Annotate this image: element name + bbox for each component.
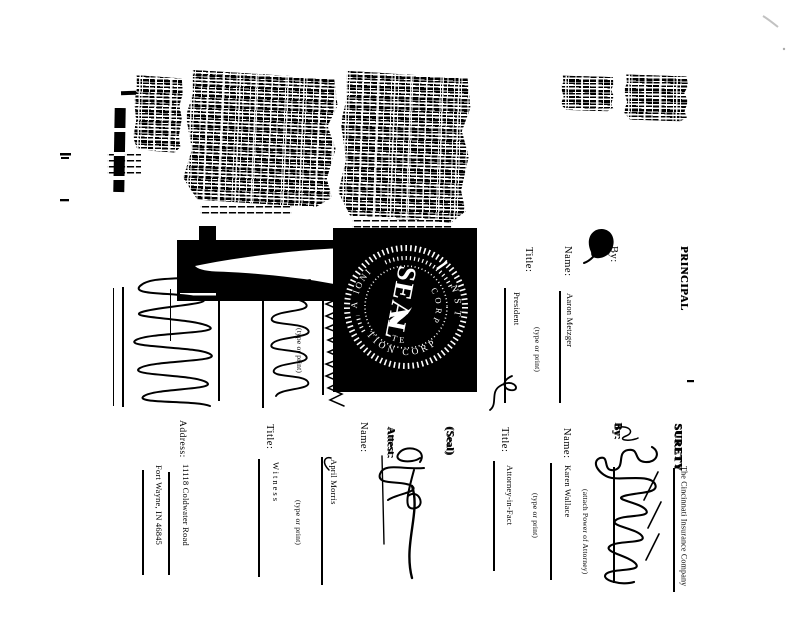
- garbled-text-block-4: [337, 71, 471, 223]
- witness-name-label: Name:: [358, 422, 369, 453]
- seal-text-right: NST: [448, 284, 462, 323]
- seal-note: (Seal): [444, 427, 455, 455]
- handwriting-rule-b: [262, 282, 264, 408]
- surety-typed-title: Attorney-in-Fact: [505, 465, 514, 525]
- garbled-text-block-1: [133, 75, 184, 153]
- garbled-text-block-4b: [352, 220, 452, 236]
- address-line2: Fort Wayne, IN 46845: [154, 465, 163, 545]
- witness-typed-name: April Morris: [329, 459, 338, 505]
- address-line2-rule: [142, 470, 144, 575]
- garbled-text-block-6: [624, 74, 689, 121]
- handwriting-rule-c: [218, 269, 220, 401]
- corporate-seal-stamp: IONI NST TION CORP A CORP TE SEAL: [333, 228, 477, 392]
- handwriting-rule-d: [122, 287, 124, 407]
- witness-title-label: Title:: [264, 424, 275, 449]
- handwriting-rule-f: [170, 289, 171, 341]
- surety-company-name: The Cincinnati Insurance Company: [679, 466, 687, 586]
- garbled-text-block-3: [182, 70, 339, 208]
- handwriting-type-or-print-caption: (type or print): [295, 328, 303, 373]
- seal-inner-dotted-ring: [365, 266, 447, 348]
- surety-type-or-print-caption: (type or print): [531, 493, 539, 538]
- seal-text-upper-left: IONI: [351, 266, 374, 295]
- attest-label: Attest:: [385, 427, 396, 459]
- seal-center-text: SEAL: [379, 264, 423, 343]
- garbled-text-block-3b: [200, 206, 292, 218]
- attest-signature: [380, 448, 424, 578]
- seal-text-left: A: [349, 301, 359, 308]
- seal-tick-mark: [437, 262, 447, 269]
- surety-typed-name: Karen Wallace: [563, 465, 572, 518]
- surety-company-line: [673, 468, 675, 592]
- seal-filler-ticks-2: [358, 316, 364, 332]
- seal-text-inner-right: CORP: [429, 286, 444, 328]
- surety-title-line: [493, 461, 495, 571]
- principal-name-label: Name:: [562, 246, 573, 277]
- witness-type-or-print-caption: (type or print): [294, 500, 302, 545]
- garbled-text-block-5: [561, 76, 615, 112]
- handwriting-rule-a: [322, 282, 324, 395]
- principal-header: PRINCIPAL: [678, 246, 689, 311]
- handwritten-entry-left: [134, 276, 212, 406]
- witness-title-line: [258, 459, 260, 577]
- principal-typed-name: Aaron Metzger: [565, 293, 574, 347]
- principal-title-label: Title:: [523, 247, 534, 272]
- principal-by-label: By:: [608, 246, 619, 263]
- witness-name-line: [321, 457, 323, 585]
- seal-filler-ticks: [385, 258, 450, 286]
- surety-header: SURETY: [672, 424, 683, 471]
- surety-by-label: By:: [612, 423, 623, 440]
- address-label: Address:: [176, 420, 186, 458]
- redaction-bar: [177, 226, 336, 301]
- handwritten-entry-middle: [271, 280, 344, 406]
- by-label-overstrike: [325, 427, 638, 470]
- principal-typed-title: President: [512, 292, 521, 325]
- surety-by-line: [613, 467, 615, 583]
- witness-typed-title: Witness: [271, 462, 280, 503]
- garbled-bar: [113, 108, 125, 192]
- surety-signature: [596, 447, 661, 583]
- surety-title-label: Title:: [499, 427, 510, 452]
- principal-name-line: [559, 291, 561, 403]
- seal-text-inner-bottom: TE: [390, 332, 407, 345]
- seal-quill-mark: [390, 307, 412, 327]
- seal-text-bottom: TION CORP: [364, 330, 440, 358]
- principal-title-line: [504, 288, 506, 403]
- surety-name-label: Name:: [561, 428, 572, 459]
- garbled-dash: [121, 91, 136, 95]
- surety-name-line: [550, 463, 552, 580]
- principal-type-or-print-caption: (type or print): [533, 327, 541, 372]
- address-line1: 11118 Coldwater Road: [181, 464, 190, 546]
- seal-outer-tick-ring: [347, 248, 465, 366]
- scanned-document-page: PRINCIPAL By: Name: Aaron Metzger (type …: [0, 0, 800, 618]
- attach-power-of-attorney-note: (attach Power of Attorney): [581, 489, 589, 574]
- handwriting-rule-e: [113, 288, 114, 406]
- address-line1-rule: [168, 472, 170, 575]
